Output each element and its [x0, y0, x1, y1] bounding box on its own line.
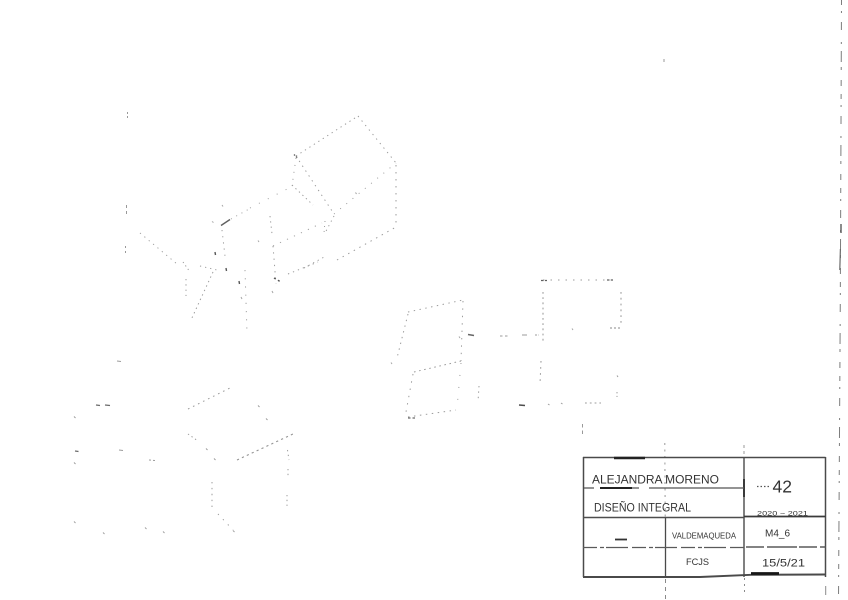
svg-text:15/5/21: 15/5/21 — [762, 558, 805, 570]
svg-text:M4_6: M4_6 — [765, 529, 790, 540]
svg-text:42: 42 — [773, 477, 792, 497]
svg-text:VALDEMAQUEDA: VALDEMAQUEDA — [672, 531, 736, 541]
svg-text:FCJS: FCJS — [686, 557, 709, 568]
svg-text:ALEJANDRA MORENO: ALEJANDRA MORENO — [592, 475, 719, 487]
svg-text:2020 ~ 2021: 2020 ~ 2021 — [757, 511, 809, 518]
svg-text:DISEÑO INTEGRAL: DISEÑO INTEGRAL — [594, 502, 692, 515]
